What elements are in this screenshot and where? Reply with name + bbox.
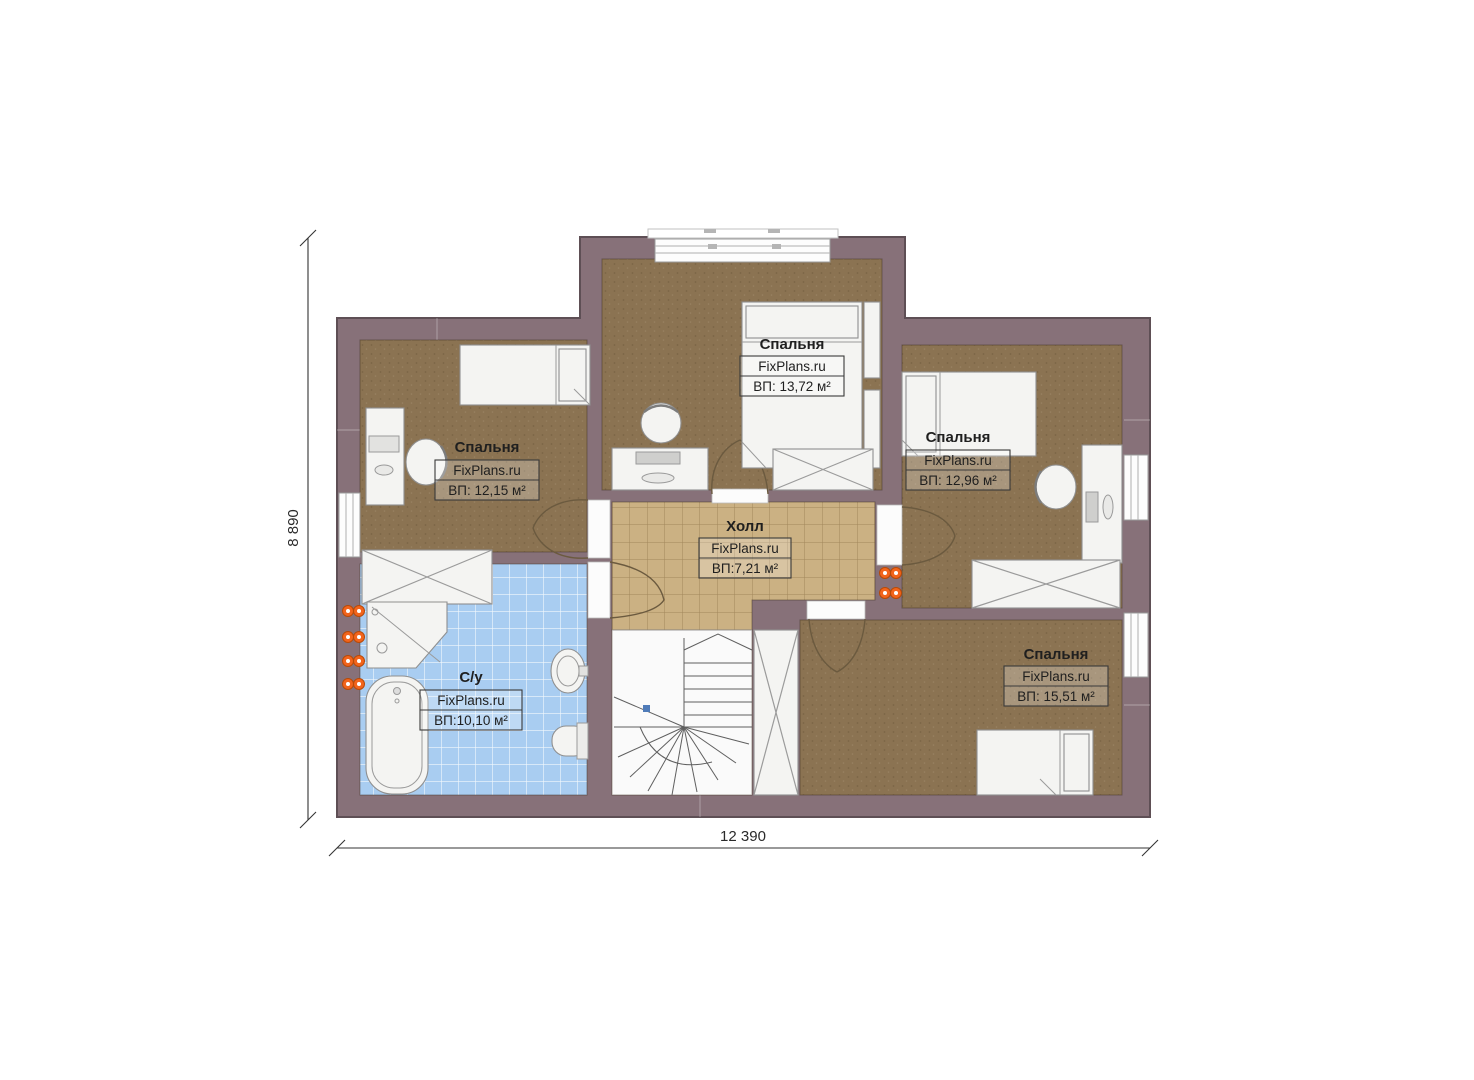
wardrobe-right-bedroom: [972, 560, 1120, 608]
room-brand: FixPlans.ru: [711, 541, 779, 556]
wardrobe-stairwell: [754, 630, 798, 795]
door-bedroom-bottom: [807, 601, 865, 619]
dimension-width: 12 390: [329, 828, 1158, 856]
wardrobe-left-bedroom: [362, 550, 492, 604]
bathtub: [366, 676, 428, 794]
room-brand: FixPlans.ru: [437, 693, 505, 708]
door-bedroom-right: [877, 505, 902, 565]
chair-right-bedroom: [1036, 465, 1077, 509]
stair-direction-marker: [643, 705, 650, 712]
room-name: Спальня: [760, 336, 825, 353]
room-name: Спальня: [1024, 646, 1089, 663]
desk-right-bedroom: [1082, 445, 1122, 563]
balcony-edge: [648, 229, 838, 238]
room-brand: FixPlans.ru: [453, 463, 521, 478]
desk-left-bedroom: [366, 408, 404, 505]
room-area: ВП: 12,15 м²: [448, 483, 526, 498]
shower-corner: [367, 602, 447, 668]
room-area: ВП:10,10 м²: [434, 713, 508, 728]
floor-plan-page: Спальня FixPlans.ru ВП: 13,72 м² Спальня…: [0, 0, 1474, 1080]
window-left: [339, 493, 360, 557]
room-name: Спальня: [926, 429, 991, 446]
dimension-width-label: 12 390: [720, 828, 766, 845]
floor-stairwell: [612, 630, 752, 795]
dimension-height-label: 8 890: [285, 509, 302, 547]
room-brand: FixPlans.ru: [758, 359, 826, 374]
bed-left-bedroom: [460, 345, 590, 405]
door-bedroom-top: [712, 489, 768, 503]
room-name: С/у: [459, 669, 483, 686]
window-right-upper: [1124, 455, 1148, 520]
toilet: [552, 723, 588, 759]
room-area: ВП: 13,72 м²: [753, 379, 831, 394]
door-bedroom-left: [588, 500, 610, 558]
armchair-top-bedroom: [641, 403, 681, 443]
floor-plan-svg: Спальня FixPlans.ru ВП: 13,72 м² Спальня…: [0, 0, 1474, 1080]
bed-bottom-bedroom: [977, 730, 1093, 795]
room-brand: FixPlans.ru: [1022, 669, 1090, 684]
desk-top-bedroom: [612, 448, 708, 490]
room-area: ВП:7,21 м²: [712, 561, 779, 576]
room-brand: FixPlans.ru: [924, 453, 992, 468]
room-name: Холл: [726, 518, 764, 535]
wardrobe-top-bedroom: [773, 449, 873, 490]
room-area: ВП: 15,51 м²: [1017, 689, 1095, 704]
room-name: Спальня: [455, 439, 520, 456]
window-top: [655, 239, 830, 262]
door-bathroom: [588, 562, 610, 618]
room-area: ВП: 12,96 м²: [919, 473, 997, 488]
dimension-height: 8 890: [285, 230, 316, 828]
window-right-lower: [1124, 613, 1148, 677]
